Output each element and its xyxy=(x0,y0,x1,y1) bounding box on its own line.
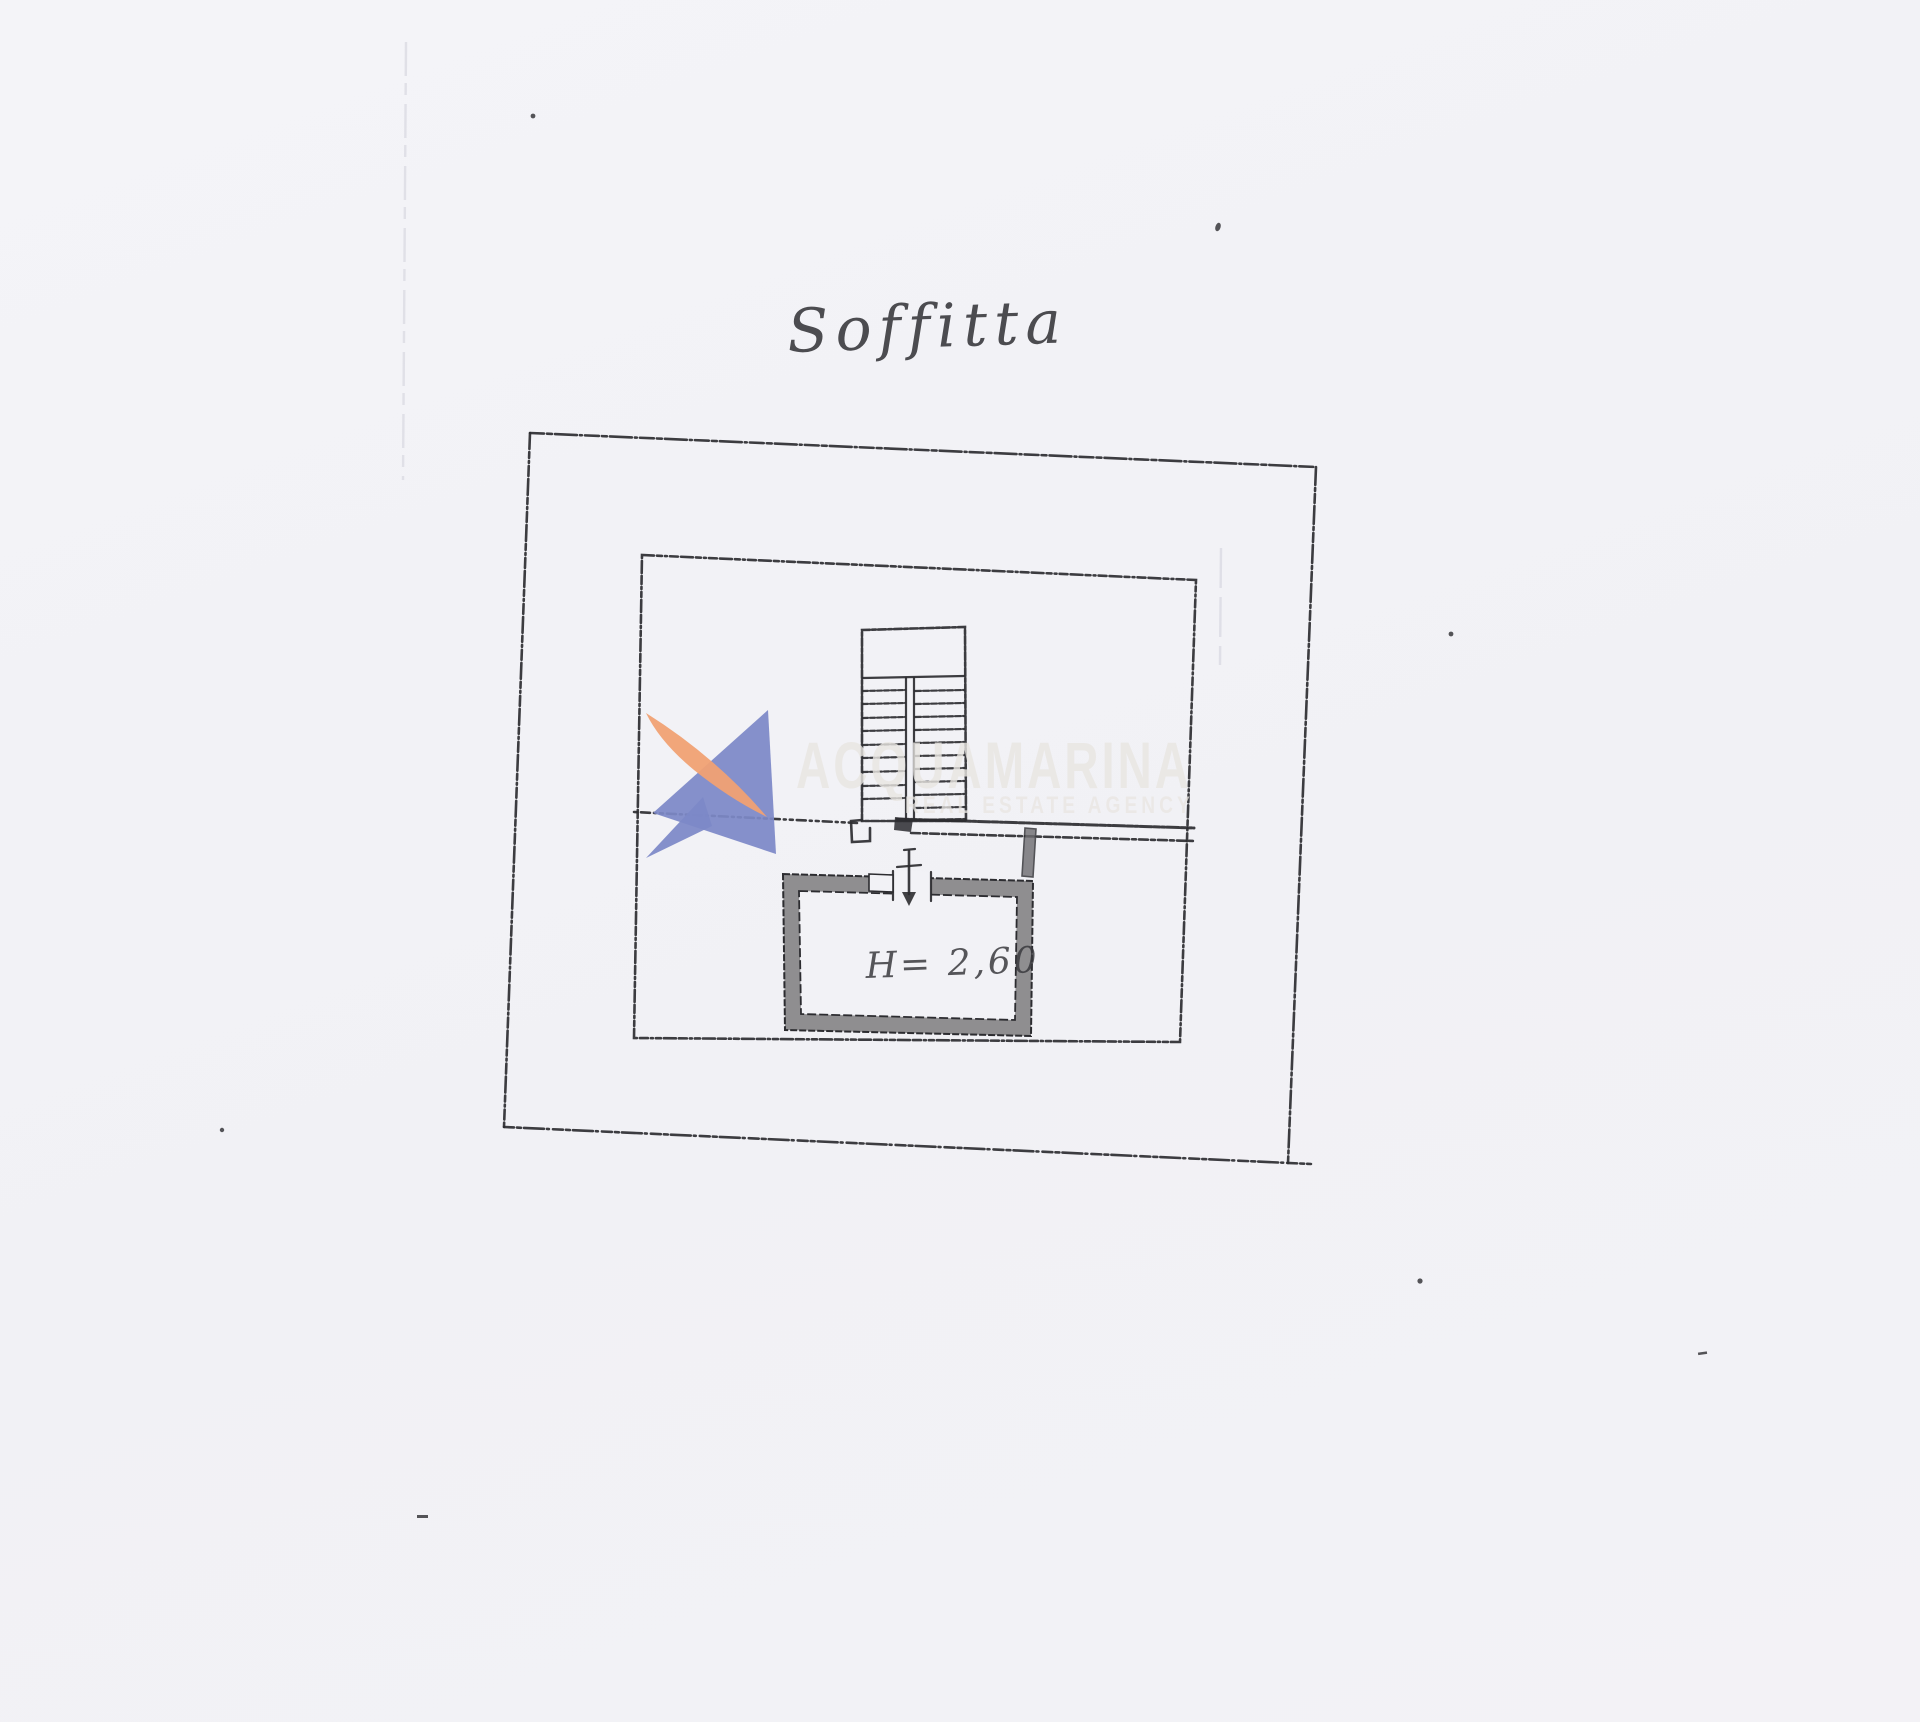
watermark-tagline: REAL ESTATE AGENCY xyxy=(905,791,1194,819)
door-leaf xyxy=(869,874,893,892)
scanned-floorplan-page: Soffitta xyxy=(0,0,1920,1722)
floorplan-drawing: Soffitta xyxy=(0,0,1920,1722)
room-wall-connector xyxy=(1022,828,1036,877)
agency-watermark: ACQUAMARINA REAL ESTATE AGENCY xyxy=(646,710,1194,858)
room-height-label: H= 2,60 xyxy=(864,940,1040,987)
aquamarina-logo-icon xyxy=(646,710,776,858)
attic-title: Soffitta xyxy=(786,287,1069,367)
